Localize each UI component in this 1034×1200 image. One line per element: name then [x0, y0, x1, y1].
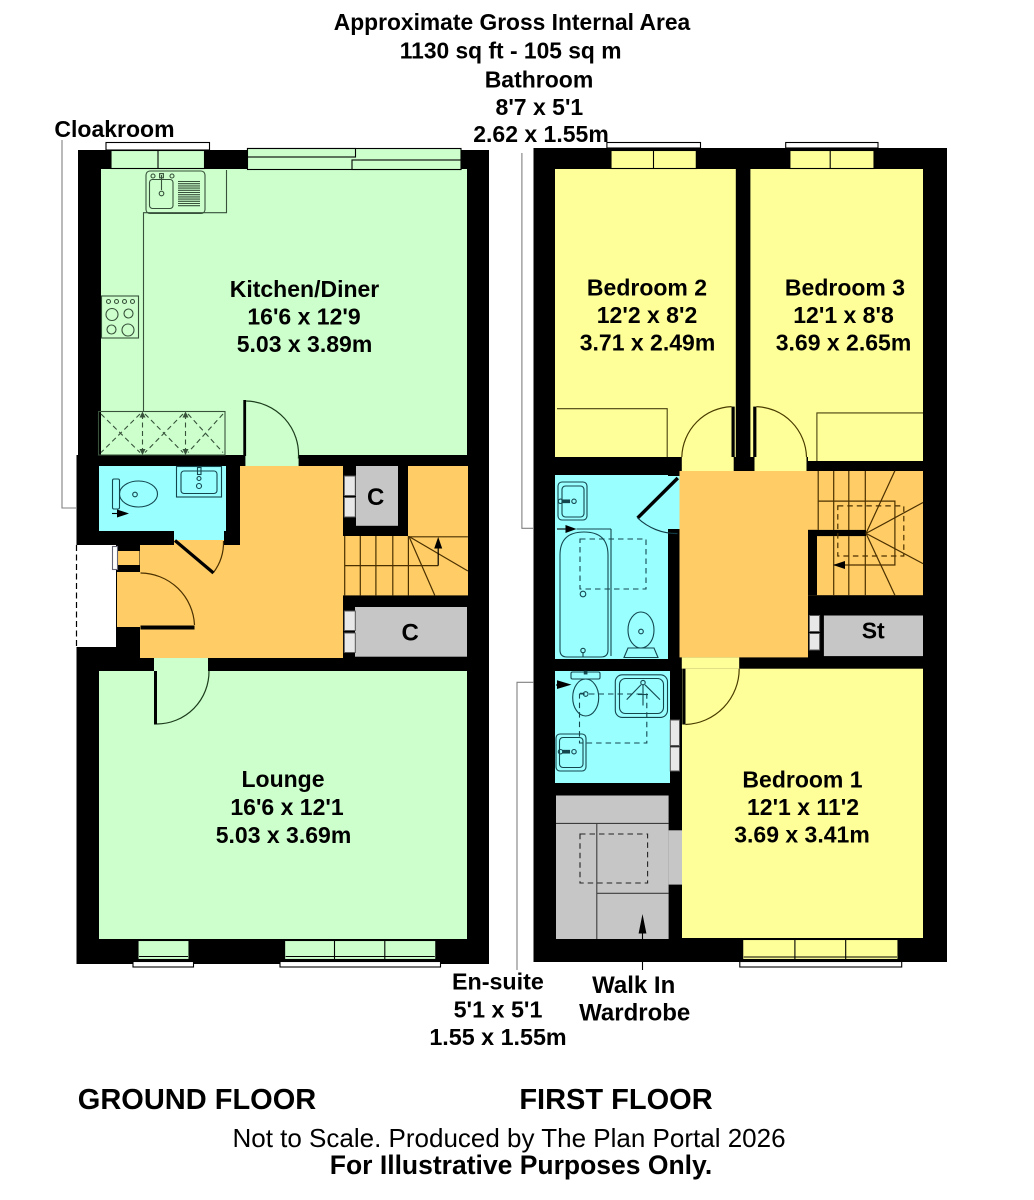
svg-text:Kitchen/Diner: Kitchen/Diner — [230, 276, 380, 302]
svg-text:Not to Scale. Produced by The: Not to Scale. Produced by The Plan Porta… — [232, 1123, 785, 1153]
svg-text:1.55 x 1.55m: 1.55 x 1.55m — [429, 1024, 566, 1050]
svg-text:5.03 x 3.89m: 5.03 x 3.89m — [237, 331, 373, 357]
svg-text:12'1 x 8'8: 12'1 x 8'8 — [793, 302, 894, 328]
svg-text:Bedroom 2: Bedroom 2 — [587, 275, 707, 301]
svg-text:St: St — [862, 618, 885, 644]
svg-text:16'6 x 12'9: 16'6 x 12'9 — [247, 304, 360, 330]
svg-text:Approximate Gross Internal Are: Approximate Gross Internal Area — [334, 9, 691, 35]
svg-text:Lounge: Lounge — [241, 766, 324, 792]
svg-text:C: C — [402, 620, 419, 647]
svg-text:5.03 x 3.69m: 5.03 x 3.69m — [216, 822, 352, 848]
svg-text:Bathroom: Bathroom — [485, 67, 594, 93]
svg-text:FIRST FLOOR: FIRST FLOOR — [519, 1084, 712, 1116]
svg-text:Bedroom 3: Bedroom 3 — [785, 275, 905, 301]
svg-text:Cloakroom: Cloakroom — [54, 116, 174, 142]
svg-text:3.69 x 3.41m: 3.69 x 3.41m — [734, 822, 870, 848]
svg-text:12'2 x 8'2: 12'2 x 8'2 — [597, 302, 697, 328]
svg-text:2.62 x 1.55m: 2.62 x 1.55m — [473, 121, 609, 147]
svg-text:8'7 x 5'1: 8'7 x 5'1 — [496, 94, 584, 120]
svg-text:Walk In: Walk In — [592, 972, 675, 999]
svg-text:3.71 x 2.49m: 3.71 x 2.49m — [580, 330, 716, 356]
svg-text:5'1 x 5'1: 5'1 x 5'1 — [454, 997, 543, 1023]
svg-text:GROUND FLOOR: GROUND FLOOR — [78, 1084, 316, 1116]
svg-text:1130 sq ft - 105 sq m: 1130 sq ft - 105 sq m — [400, 38, 622, 64]
svg-text:Bedroom 1: Bedroom 1 — [742, 767, 862, 793]
svg-text:C: C — [367, 484, 384, 511]
svg-text:En-suite: En-suite — [452, 969, 544, 995]
svg-text:3.69 x 2.65m: 3.69 x 2.65m — [776, 330, 912, 356]
svg-text:For Illustrative Purposes Only: For Illustrative Purposes Only. — [330, 1150, 712, 1180]
svg-text:16'6 x 12'1: 16'6 x 12'1 — [230, 794, 343, 820]
svg-text:12'1 x 11'2: 12'1 x 11'2 — [747, 794, 859, 820]
svg-text:Wardrobe: Wardrobe — [579, 999, 690, 1026]
